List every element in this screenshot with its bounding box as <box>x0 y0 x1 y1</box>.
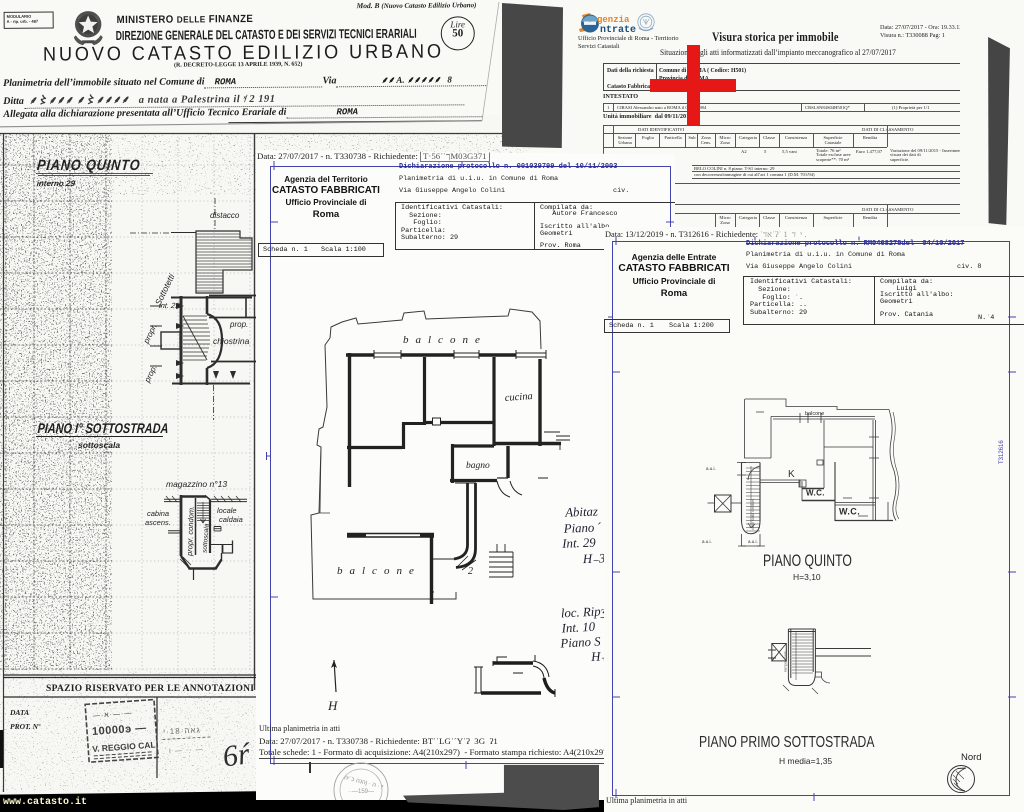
svg-text:propr.: propr. <box>141 322 159 345</box>
svg-text:H: H <box>327 698 338 713</box>
svg-text:balcone: balcone <box>403 334 487 346</box>
svg-text:··—159—: ··—159— <box>348 789 374 795</box>
svg-text:a.u.i.: a.u.i. <box>748 539 758 544</box>
svg-text:T312616: T312616 <box>999 440 1005 464</box>
svg-text:genzia: genzia <box>597 15 630 25</box>
svg-text:DATA: DATA <box>9 708 29 717</box>
svg-text:W.C.: W.C. <box>806 489 825 498</box>
svg-text:distacco: distacco <box>210 211 240 220</box>
svg-text:a.u.i.: a.u.i. <box>706 466 716 471</box>
svg-text:PROT. Nº: PROT. Nº <box>10 722 41 731</box>
svg-text:rampa scala: rampa scala <box>784 650 788 672</box>
svg-text:ntrate: ntrate <box>600 25 636 35</box>
svg-text:ascens.: ascens. <box>145 518 171 527</box>
svg-text:cabina: cabina <box>147 509 169 518</box>
svg-text:K: K <box>788 469 795 480</box>
svg-text:interno 29: interno 29 <box>36 179 76 188</box>
svg-text:balcone: balcone <box>805 411 824 417</box>
svg-text:int. 29: int. 29 <box>158 301 180 310</box>
svg-text:PIANO QUINTO: PIANO QUINTO <box>36 156 141 173</box>
svg-text:PIANO I° SOTTOSTRADA: PIANO I° SOTTOSTRADA <box>37 421 169 437</box>
svg-text:bagno: bagno <box>466 461 490 471</box>
svg-text:W.C.: W.C. <box>839 507 860 517</box>
svg-text:caldaia: caldaia <box>219 515 243 524</box>
svg-text:a.u.i.: a.u.i. <box>702 539 712 544</box>
svg-text:vano scala condom.: vano scala condom. <box>751 498 755 530</box>
svg-text:2: 2 <box>468 566 473 577</box>
svg-text:cucina: cucina <box>504 391 533 404</box>
svg-text:prop.: prop. <box>142 364 159 385</box>
svg-text:propr. condom.: propr. condom. <box>185 506 196 557</box>
svg-text:magazzino n°13: magazzino n°13 <box>166 479 227 489</box>
svg-text:SPAZIO RISERVATO PER LE ANNOTA: SPAZIO RISERVATO PER LE ANNOTAZIONI D’UF… <box>46 684 287 694</box>
svg-text:balcone: balcone <box>337 565 421 577</box>
svg-text:sottoscala: sottoscala <box>78 440 120 450</box>
svg-text:prop.: prop. <box>229 320 248 329</box>
svg-text:chiostrina: chiostrina <box>213 336 250 346</box>
svg-text:locale: locale <box>217 506 237 515</box>
